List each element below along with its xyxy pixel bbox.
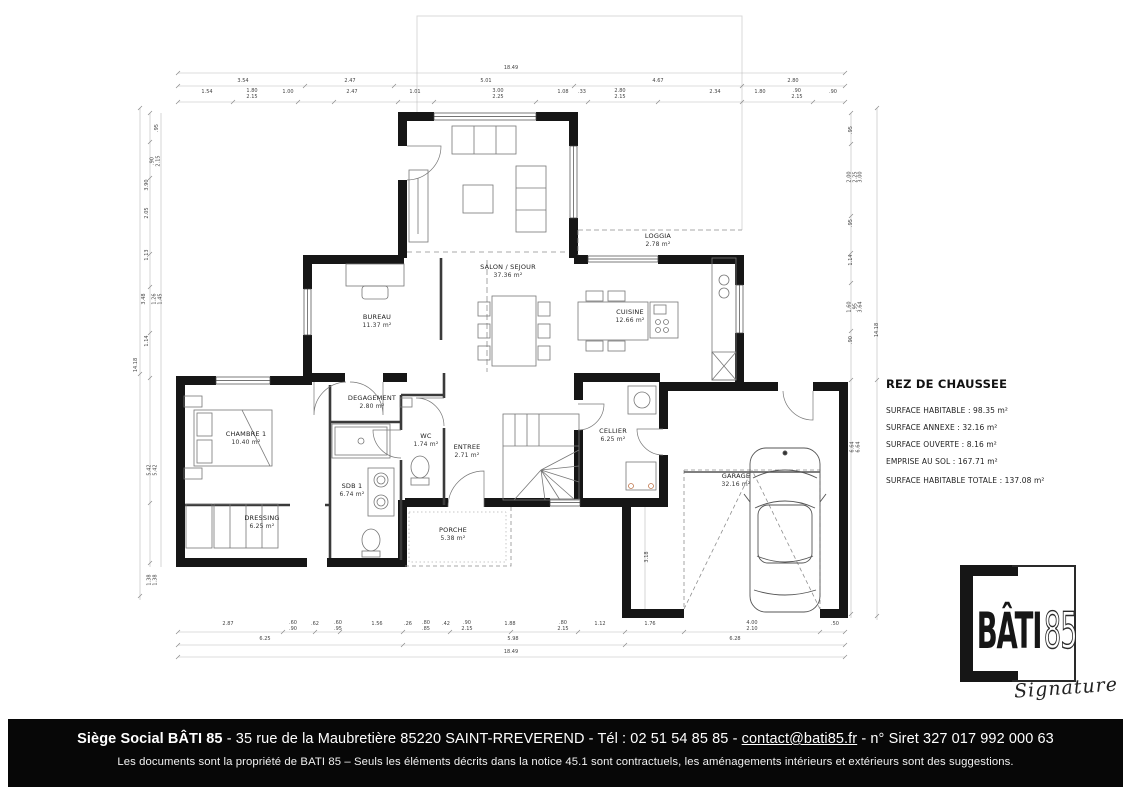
dimension-label: 5.01 (480, 78, 491, 84)
separator: - (728, 731, 741, 747)
dimension-label: 6.646.64 (850, 441, 861, 452)
exterior-walls (176, 112, 848, 618)
roof-outline (417, 16, 742, 230)
footer-bar: Siège Social BÂTI 85 - 35 rue de la Maub… (8, 719, 1123, 787)
room-label-bureau: BUREAU11.37 m² (363, 313, 392, 331)
footer-siret: n° Siret 327 017 992 000 63 (870, 731, 1053, 747)
dimension-label: 1.54 (201, 89, 212, 95)
dimension-label: 1.12 (594, 621, 605, 627)
room-label-cuisine: CUISINE12.66 m² (616, 308, 645, 326)
dimension-label: .802.15 (557, 621, 568, 632)
surface-habitable-totale: SURFACE HABITABLE TOTALE : 137.08 m² (886, 476, 1131, 485)
emprise-au-sol: EMPRISE AU SOL : 167.71 m² (886, 457, 1131, 466)
dimension-label: 2.80 (787, 78, 798, 84)
dimension-label: 3.54 (237, 78, 248, 84)
dimension-label: 5.98 (507, 636, 518, 642)
dimension-label: 6.25 (259, 636, 270, 642)
room-label-wc: WC1.74 m² (414, 432, 439, 450)
room-label-cellier: CELLIER6.25 m² (599, 427, 627, 445)
floor-summary: REZ DE CHAUSSEE SURFACE HABITABLE : 98.3… (886, 377, 1131, 493)
dimension-label: 1.01 (409, 89, 420, 95)
dimension-label: 6.28 (729, 636, 740, 642)
dimension-label: .26 (404, 621, 412, 627)
dimension-label: 14.18 (874, 323, 880, 337)
plan-sheet: SALON / SEJOUR37.36 m² CUISINE12.66 m² B… (0, 0, 1131, 800)
dimension-label: 1.13 (144, 249, 150, 260)
dimension-lines (140, 73, 877, 657)
room-label-degagement: DEGAGEMENT2.80 m² (348, 394, 396, 412)
dimension-label: .95 (848, 219, 854, 227)
dimension-label: .33 (578, 89, 586, 95)
dimension-label: 18.49 (504, 65, 518, 71)
dimension-label: 2.802.15 (614, 89, 625, 100)
dimension-label: 1.88 (504, 621, 515, 627)
footer-address: 35 rue de la Maubretière 85220 SAINT-RRE… (236, 731, 585, 747)
dimension-label: 3.48 (141, 293, 147, 304)
logo-wordmark: BÂTI 85 (958, 565, 1098, 682)
dimension-label: 4.002.10 (746, 621, 757, 632)
footer-notice-line: Les documents sont la propriété de BATI … (8, 756, 1123, 768)
room-label-loggia: LOGGIA2.78 m² (645, 232, 671, 250)
dimension-label: 2.05 (144, 207, 150, 218)
dimension-label: 1.56 (371, 621, 382, 627)
dimension-label: 1.802.15 (246, 89, 257, 100)
dimension-label: 1.08 (557, 89, 568, 95)
room-label-chambre-1: CHAMBRE 110.40 m² (226, 430, 267, 448)
dimension-label: 2.47 (346, 89, 357, 95)
logo-brand-text: BÂTI (977, 601, 1042, 660)
separator: - (585, 731, 598, 747)
separator: - (857, 731, 870, 747)
dimension-label: .42 (442, 621, 450, 627)
dimension-label: 3.18 (644, 551, 650, 562)
dimension-label: .902.15 (150, 155, 161, 166)
dimension-label: 1.14 (848, 254, 854, 265)
email-link[interactable]: contact@bati85.fr (742, 731, 858, 747)
dimension-label: 18.49 (504, 649, 518, 655)
separator: - (223, 731, 236, 747)
surface-ouverte: SURFACE OUVERTE : 8.16 m² (886, 440, 1131, 449)
dimension-label: 1.00 (282, 89, 293, 95)
dimension-label: .95 (154, 124, 160, 132)
dimension-label: .902.15 (791, 89, 802, 100)
dimension-label: 2.47 (344, 78, 355, 84)
dimension-label: 1.261.45 (152, 293, 163, 304)
dimension-label: .80.85 (422, 621, 430, 632)
room-label-entree: ENTREE2.71 m² (454, 443, 481, 461)
bati85-logo: BÂTI 85 Signature (958, 565, 1098, 710)
dimension-label: .902.15 (461, 621, 472, 632)
surface-habitable: SURFACE HABITABLE : 98.35 m² (886, 406, 1131, 415)
dimension-label: 5.425.42 (147, 464, 158, 475)
dimension-label: .95 (848, 126, 854, 134)
room-label-dressing: DRESSING6.25 m² (244, 514, 279, 532)
dimension-label: .60.90 (289, 621, 297, 632)
dimension-label: 2.002.253.00 (848, 171, 865, 182)
dimension-label: 1.76 (644, 621, 655, 627)
dimension-label: 1.381.38 (147, 574, 158, 585)
dimension-label: 1.60.953.64 (848, 301, 865, 312)
dimension-label: 4.67 (652, 78, 663, 84)
dimension-label: .60.95 (334, 621, 342, 632)
dimension-label: 1.80 (754, 89, 765, 95)
room-label-porche: PORCHE5.38 m² (439, 526, 467, 544)
dimension-label: 14.18 (133, 358, 139, 372)
dimension-label: .90 (848, 336, 854, 344)
room-label-salon-sejour: SALON / SEJOUR37.36 m² (480, 263, 536, 281)
surface-annexe: SURFACE ANNEXE : 32.16 m² (886, 423, 1131, 432)
footer-contact-line: Siège Social BÂTI 85 - 35 rue de la Maub… (8, 731, 1123, 747)
dimension-label: .90 (829, 89, 837, 95)
dimension-ticks (138, 71, 879, 659)
logo-number-text: 85 (1044, 602, 1077, 660)
dimension-label: 1.14 (144, 335, 150, 346)
room-label-sdb-1: SDB 16.74 m² (340, 482, 365, 500)
dimension-label: 3.002.25 (492, 89, 503, 100)
dimension-label: .50 (831, 621, 839, 627)
dimension-label: .62 (311, 621, 319, 627)
dimension-label: 2.34 (709, 89, 720, 95)
dimension-label: 2.87 (222, 621, 233, 627)
footer-company: Siège Social BÂTI 85 (77, 731, 222, 747)
dimension-label: 3.90 (144, 179, 150, 190)
room-label-garage: GARAGE32.16 m² (722, 472, 751, 490)
footer-phone: Tél : 02 51 54 85 85 (597, 731, 728, 747)
furniture (184, 126, 736, 557)
floor-title: REZ DE CHAUSSEE (886, 377, 1131, 391)
